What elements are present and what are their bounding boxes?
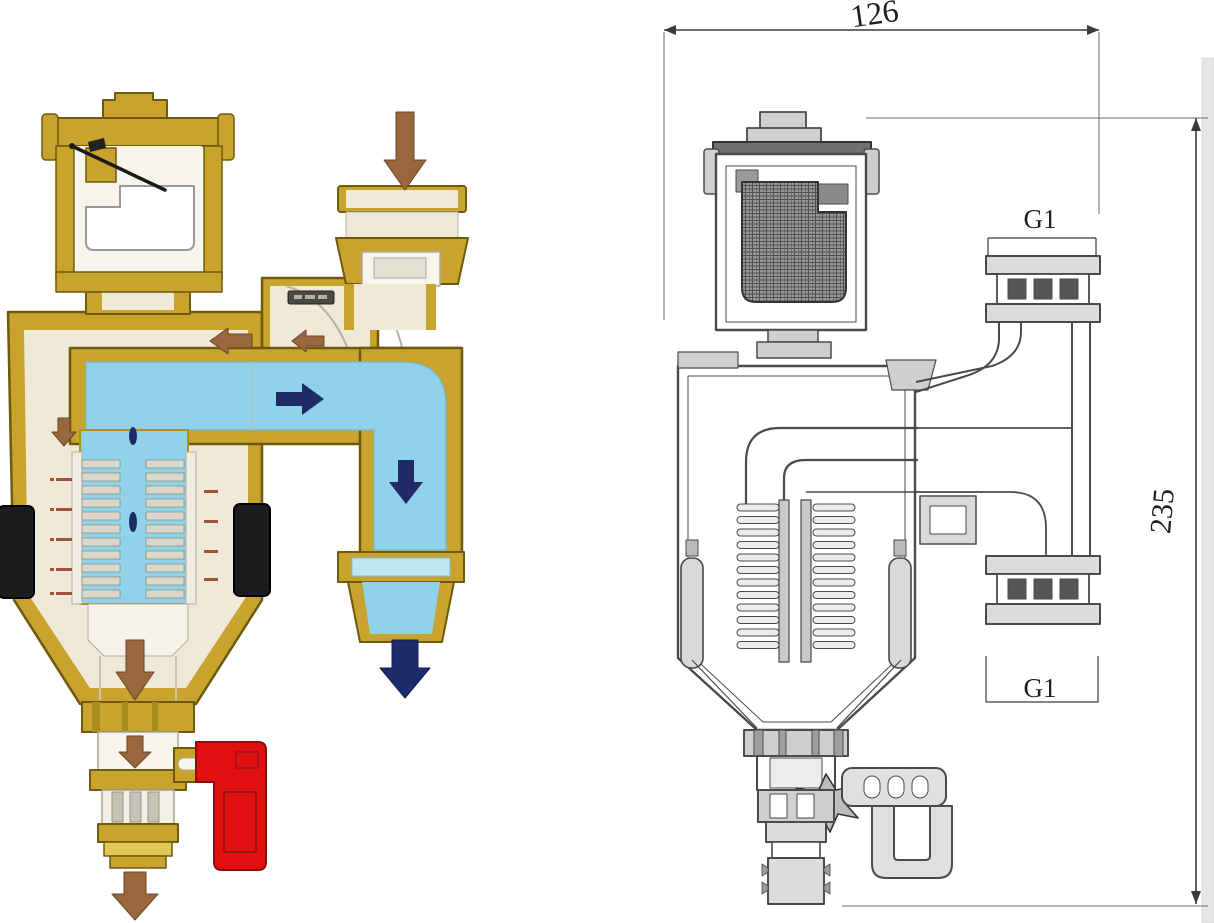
hose-barb (98, 824, 178, 868)
automatic-air-vent (42, 93, 234, 314)
flow-arrow-outlet-down-icon (380, 640, 430, 698)
outlet-thread-label: G1 (1024, 673, 1057, 703)
diagram-page: 126 235 G1 G1 (0, 0, 1214, 923)
vent-cap (103, 93, 167, 120)
magnet-left (0, 506, 34, 598)
connection-pipes (916, 322, 1090, 556)
page-edge-strip (1202, 58, 1214, 923)
drain-valve-outline (744, 730, 952, 904)
inlet-union (336, 186, 468, 330)
cutaway-illustration (0, 93, 468, 920)
thread-label-outlet: G1 (986, 656, 1098, 703)
union-top (986, 256, 1100, 322)
flow-arrow-inlet-down-icon (384, 112, 426, 190)
magnet-right (234, 504, 270, 596)
thread-label-inlet: G1 (988, 204, 1096, 256)
hose-barb-outline (768, 858, 824, 904)
diagram-canvas: 126 235 G1 G1 (0, 0, 1214, 923)
drain-assembly (82, 702, 194, 868)
outlet-union (338, 552, 464, 642)
drain-handle (174, 742, 266, 870)
height-dimension-label: 235 (1144, 487, 1181, 535)
magnet-pocket-left (681, 558, 703, 668)
width-dimension-label: 126 (848, 0, 901, 34)
magnet-pocket-right (889, 558, 911, 668)
vent-outline (704, 112, 879, 358)
drain-handle-outline (842, 768, 952, 878)
inlet-thread-label: G1 (1024, 204, 1057, 234)
dirt-particle-icon (129, 512, 137, 532)
dirt-particle-icon (129, 427, 137, 445)
flow-arrow-outflow-down-icon (112, 872, 158, 920)
technical-drawing: 126 235 G1 G1 (664, 0, 1214, 923)
union-bottom (986, 556, 1100, 624)
